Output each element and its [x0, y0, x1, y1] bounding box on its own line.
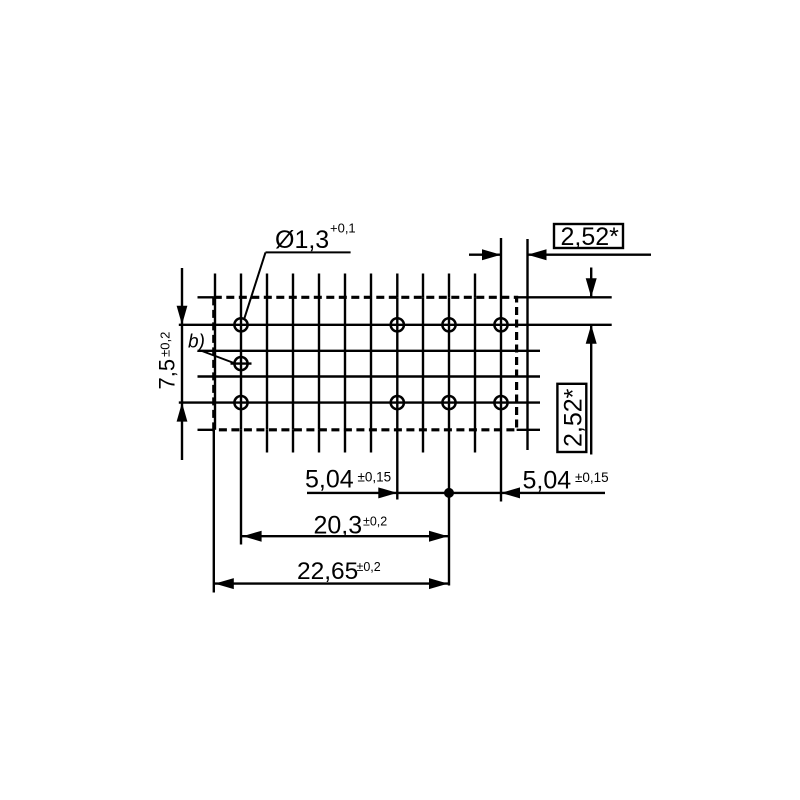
- svg-text:±0,2: ±0,2: [363, 515, 387, 529]
- svg-text:+0,1: +0,1: [330, 221, 356, 236]
- svg-text:22,65: 22,65: [297, 558, 358, 585]
- svg-text:±0,2: ±0,2: [357, 560, 381, 574]
- svg-text:20,3: 20,3: [314, 512, 363, 540]
- svg-text:b): b): [188, 332, 205, 353]
- svg-text:2,52*: 2,52*: [561, 223, 620, 251]
- svg-text:5,04: 5,04: [305, 466, 354, 494]
- svg-text:±0,15: ±0,15: [575, 470, 609, 485]
- svg-text:5,04: 5,04: [523, 467, 572, 495]
- svg-text:±0,15: ±0,15: [358, 470, 392, 485]
- svg-text:Ø1,3: Ø1,3: [275, 226, 329, 254]
- svg-text:2,52*: 2,52*: [560, 388, 588, 447]
